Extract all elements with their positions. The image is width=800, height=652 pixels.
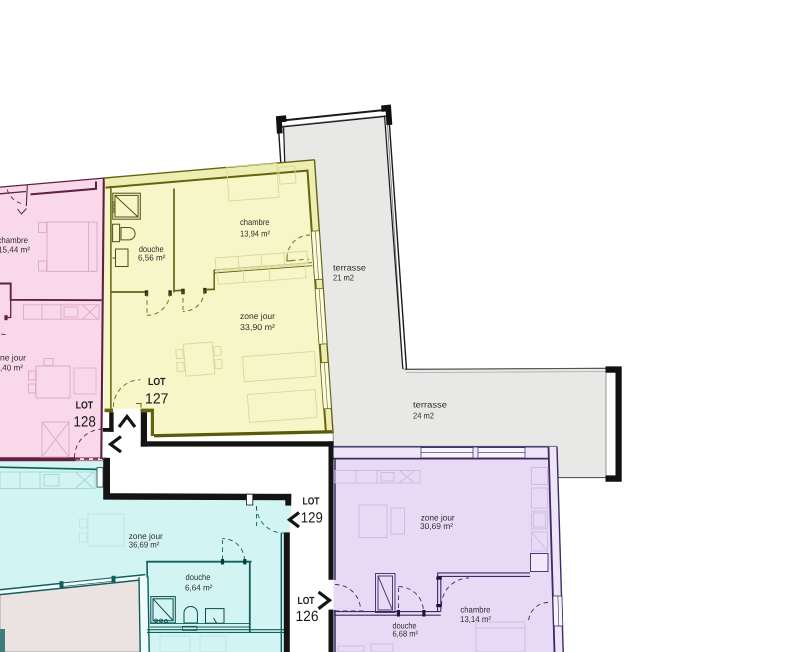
svg-text:126: 126 xyxy=(296,609,319,625)
svg-text:6,56 m²: 6,56 m² xyxy=(138,253,166,263)
svg-text:28,40 m²: 28,40 m² xyxy=(0,363,23,373)
svg-text:128: 128 xyxy=(73,414,96,430)
svg-text:6,64 m²: 6,64 m² xyxy=(185,583,213,593)
svg-text:15,44 m²: 15,44 m² xyxy=(0,245,30,255)
svg-text:36,69 m²: 36,69 m² xyxy=(129,540,160,550)
svg-text:127: 127 xyxy=(145,391,169,407)
svg-text:LOT: LOT xyxy=(303,497,321,508)
svg-text:13,14 m²: 13,14 m² xyxy=(460,614,491,624)
svg-text:zone jour: zone jour xyxy=(240,311,275,321)
svg-text:33,90 m²: 33,90 m² xyxy=(240,322,275,332)
svg-text:zone jour: zone jour xyxy=(0,353,26,363)
svg-text:chambre: chambre xyxy=(0,235,28,245)
svg-text:chambre: chambre xyxy=(240,217,270,227)
svg-text:30,69 m²: 30,69 m² xyxy=(420,521,453,531)
svg-text:chambre: chambre xyxy=(460,605,490,615)
svg-text:LOT: LOT xyxy=(148,377,166,388)
svg-text:21 m2: 21 m2 xyxy=(333,273,354,283)
svg-text:LOT: LOT xyxy=(76,400,94,411)
svg-text:terrasse: terrasse xyxy=(413,400,447,410)
svg-text:douche: douche xyxy=(186,572,211,582)
svg-text:129: 129 xyxy=(301,510,323,526)
svg-text:6,68 m²: 6,68 m² xyxy=(393,629,419,639)
svg-text:LOT: LOT xyxy=(298,596,316,607)
svg-text:terrasse: terrasse xyxy=(333,263,366,273)
svg-text:24 m2: 24 m2 xyxy=(413,411,434,421)
svg-text:13,94 m²: 13,94 m² xyxy=(240,228,270,238)
